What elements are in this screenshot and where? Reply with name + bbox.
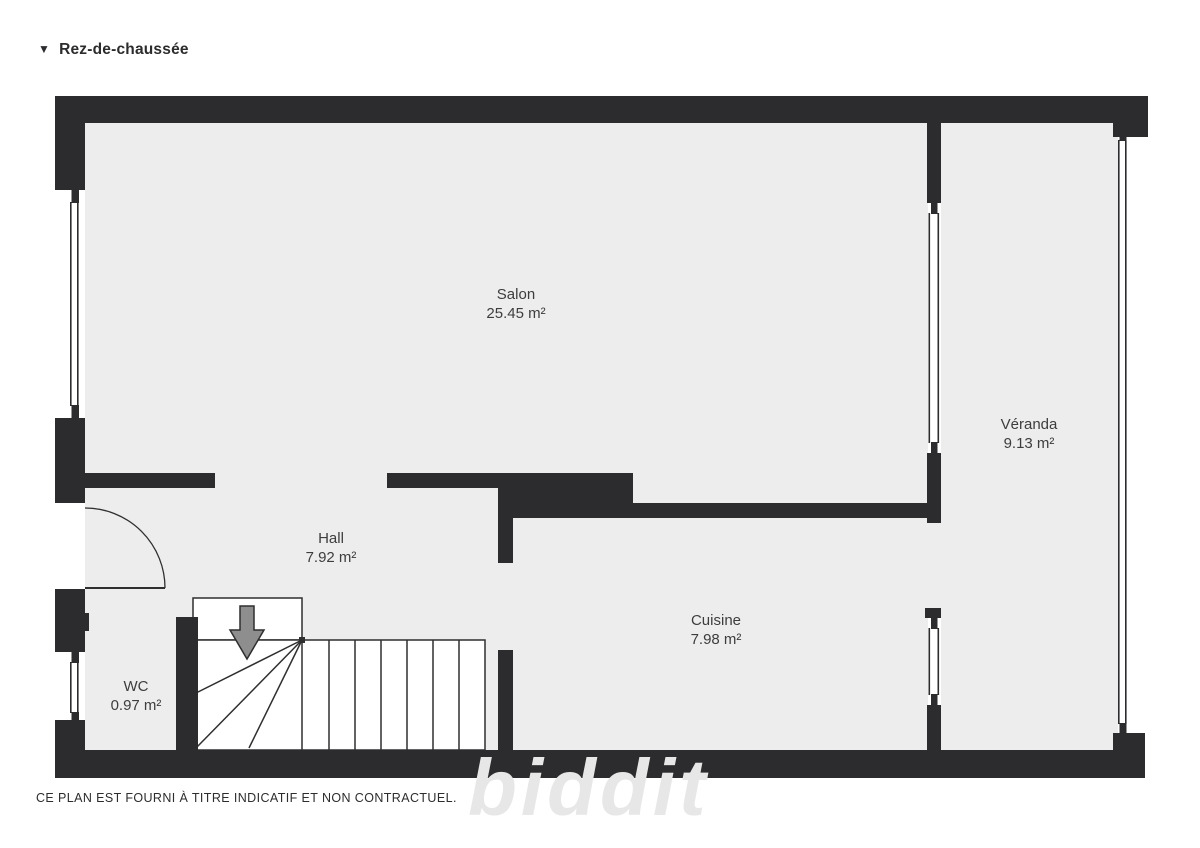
- left-wall-mid: [55, 418, 85, 503]
- left-wall-lower: [55, 589, 85, 652]
- hall-cuisine-wall-upper: [498, 488, 513, 563]
- wc-stair-wall: [176, 617, 198, 750]
- left-window-salon: [70, 190, 79, 418]
- room-area: 25.45 m²: [486, 304, 545, 323]
- right-window-veranda: [1118, 128, 1127, 735]
- salon-cuisine-wall-block: [498, 473, 633, 518]
- left-window-wc: [70, 652, 79, 723]
- veranda-partition-window-upper: [929, 203, 940, 454]
- bottom-right-corner: [1113, 733, 1145, 778]
- watermark: biddit: [468, 748, 710, 828]
- disclaimer-text: CE PLAN EST FOURNI À TITRE INDICATIF ET …: [36, 791, 457, 805]
- room-label-veranda: Véranda 9.13 m²: [1001, 415, 1058, 453]
- room-name: Véranda: [1001, 415, 1058, 434]
- room-area: 0.97 m²: [111, 696, 162, 715]
- room-name: Hall: [306, 529, 357, 548]
- cuisine-veranda-passage-floor: [928, 523, 941, 608]
- room-label-wc: WC 0.97 m²: [111, 677, 162, 715]
- room-label-cuisine: Cuisine 7.98 m²: [691, 611, 742, 649]
- hall-salon-wall-right: [387, 473, 513, 488]
- top-right-corner: [1113, 96, 1148, 137]
- room-name: WC: [111, 677, 162, 696]
- room-area: 7.98 m²: [691, 630, 742, 649]
- room-label-hall: Hall 7.92 m²: [306, 529, 357, 567]
- hall-cuisine-wall-lower: [498, 650, 513, 750]
- veranda-wall-bottom: [927, 705, 941, 750]
- room-label-salon: Salon 25.45 m²: [486, 285, 545, 323]
- room-name: Cuisine: [691, 611, 742, 630]
- room-area: 7.92 m²: [306, 548, 357, 567]
- room-name: Salon: [486, 285, 545, 304]
- left-wall-upper: [55, 96, 85, 190]
- top-wall: [55, 96, 1148, 123]
- wc-door-stub: [82, 613, 89, 631]
- stair-run: [193, 640, 485, 750]
- veranda-wall-top: [927, 123, 941, 203]
- veranda-partition-window-lower: [929, 618, 940, 706]
- winder-apex: [299, 637, 305, 643]
- hall-salon-wall-left: [82, 473, 215, 488]
- floor-plan-page: ▼ Rez-de-chaussée: [0, 0, 1200, 848]
- room-area: 9.13 m²: [1001, 434, 1058, 453]
- salon-cuisine-wall: [633, 503, 928, 518]
- veranda-wall-cap: [925, 608, 941, 618]
- veranda-wall-mid: [927, 453, 941, 523]
